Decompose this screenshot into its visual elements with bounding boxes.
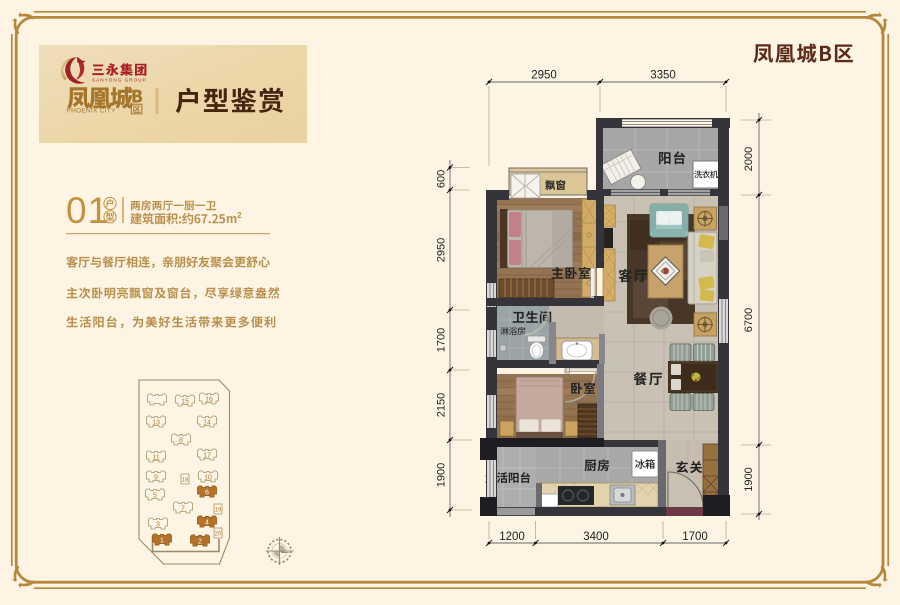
svg-text:6: 6: [205, 490, 209, 497]
svg-text:1900: 1900: [743, 467, 755, 491]
svg-text:600: 600: [436, 170, 448, 188]
svg-text:1: 1: [160, 538, 164, 545]
svg-text:16: 16: [205, 397, 213, 404]
svg-text:9: 9: [154, 475, 158, 482]
svg-text:7: 7: [181, 506, 185, 513]
svg-text:2: 2: [198, 539, 202, 546]
svg-text:19: 19: [215, 508, 222, 514]
svg-text:PHOENIX CITY: PHOENIX CITY: [67, 108, 117, 115]
svg-text:SANYONG GROUP: SANYONG GROUP: [92, 78, 147, 83]
svg-text:2950: 2950: [531, 70, 557, 82]
svg-text:14: 14: [203, 420, 211, 427]
svg-text:1700: 1700: [682, 531, 708, 543]
svg-text:5: 5: [153, 493, 157, 500]
svg-text:2150: 2150: [436, 393, 448, 417]
svg-text:17: 17: [203, 453, 211, 460]
svg-text:3400: 3400: [583, 531, 609, 543]
svg-text:8: 8: [179, 438, 183, 445]
svg-text:4: 4: [205, 520, 209, 527]
svg-text:01: 01: [66, 190, 109, 231]
svg-text:20: 20: [215, 532, 222, 538]
svg-text:10: 10: [204, 475, 212, 482]
svg-text:3350: 3350: [650, 70, 676, 82]
svg-text:1200: 1200: [499, 531, 525, 543]
svg-text:13: 13: [152, 420, 160, 427]
svg-text:18: 18: [182, 478, 189, 484]
svg-text:2000: 2000: [743, 147, 755, 171]
svg-text:11: 11: [152, 455, 159, 462]
svg-text:1900: 1900: [436, 463, 448, 487]
svg-text:3: 3: [156, 522, 160, 529]
svg-text:1700: 1700: [436, 328, 448, 352]
svg-text:15: 15: [181, 399, 189, 406]
svg-text:6700: 6700: [743, 308, 755, 332]
svg-text:2950: 2950: [436, 238, 448, 262]
